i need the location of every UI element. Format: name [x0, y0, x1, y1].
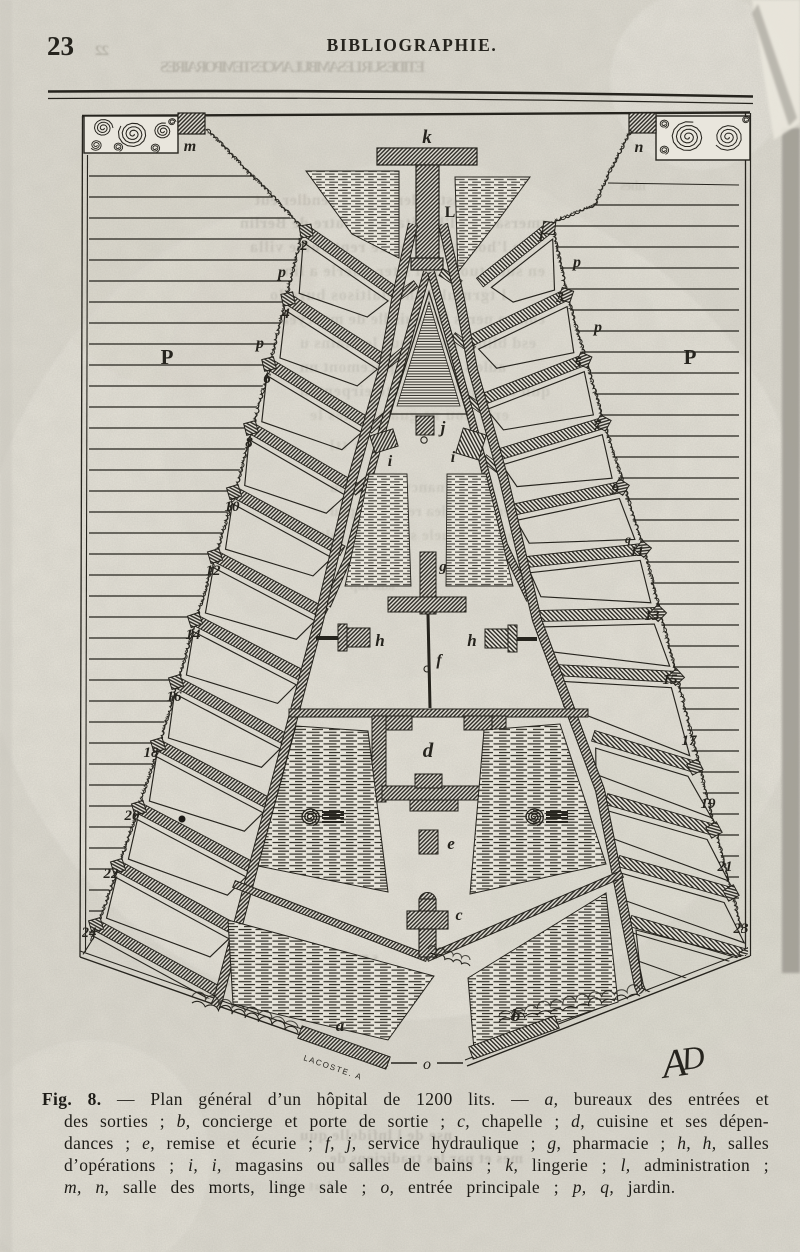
svg-text:ETIDE SUR LES AMBULANCES TEMPO: ETIDE SUR LES AMBULANCES TEMPORAIRES	[160, 59, 425, 76]
svg-text:n: n	[635, 139, 644, 156]
svg-text:d: d	[423, 738, 434, 762]
svg-text:16: 16	[167, 689, 183, 705]
svg-text:i: i	[388, 453, 393, 470]
svg-text:a: a	[336, 1016, 345, 1035]
svg-text:e: e	[447, 834, 455, 853]
svg-text:23: 23	[47, 31, 74, 61]
svg-text:18: 18	[144, 745, 160, 761]
svg-text:24: 24	[81, 925, 98, 941]
svg-text:b: b	[512, 1006, 521, 1025]
svg-text:D: D	[678, 1038, 707, 1077]
svg-text:15: 15	[663, 672, 679, 688]
svg-text:i: i	[451, 449, 456, 466]
svg-text:4: 4	[281, 306, 290, 322]
svg-text:6: 6	[263, 371, 271, 387]
svg-text:BIBLIOGRAPHIE.: BIBLIOGRAPHIE.	[327, 35, 498, 55]
svg-text:11: 11	[630, 544, 644, 560]
svg-text:h: h	[375, 631, 384, 650]
svg-text:nhes: nhes	[619, 179, 646, 194]
svg-text:p: p	[571, 254, 581, 271]
svg-text:12: 12	[206, 563, 222, 579]
svg-text:22: 22	[103, 866, 120, 882]
svg-text:m: m	[184, 138, 196, 155]
svg-text:20: 20	[124, 808, 141, 824]
svg-text:23: 23	[733, 921, 750, 937]
svg-text:21: 21	[717, 859, 733, 875]
svg-text:g: g	[438, 559, 447, 575]
svg-text:17: 17	[682, 733, 698, 749]
svg-text:2: 2	[299, 238, 308, 254]
svg-text:10: 10	[225, 499, 241, 515]
svg-text:p: p	[254, 335, 264, 352]
svg-text:p: p	[592, 319, 602, 336]
svg-text:P: P	[684, 345, 697, 369]
svg-text:14: 14	[186, 627, 202, 643]
svg-text:3: 3	[555, 290, 564, 306]
svg-text:7: 7	[593, 418, 601, 434]
svg-text:9: 9	[611, 482, 619, 498]
svg-text:8: 8	[245, 435, 253, 451]
svg-text:L: L	[445, 204, 456, 221]
svg-text:19: 19	[701, 796, 717, 812]
svg-text:1: 1	[537, 229, 545, 245]
svg-text:c: c	[455, 907, 462, 924]
svg-text:k: k	[422, 127, 432, 148]
svg-text:h: h	[467, 631, 476, 650]
svg-text:o: o	[423, 1056, 431, 1073]
svg-text:5: 5	[574, 355, 582, 371]
svg-text:P: P	[161, 345, 174, 369]
svg-text:p: p	[276, 264, 286, 281]
svg-text:13: 13	[645, 608, 661, 624]
svg-text:q: q	[625, 532, 631, 546]
svg-text:22: 22	[95, 43, 109, 59]
